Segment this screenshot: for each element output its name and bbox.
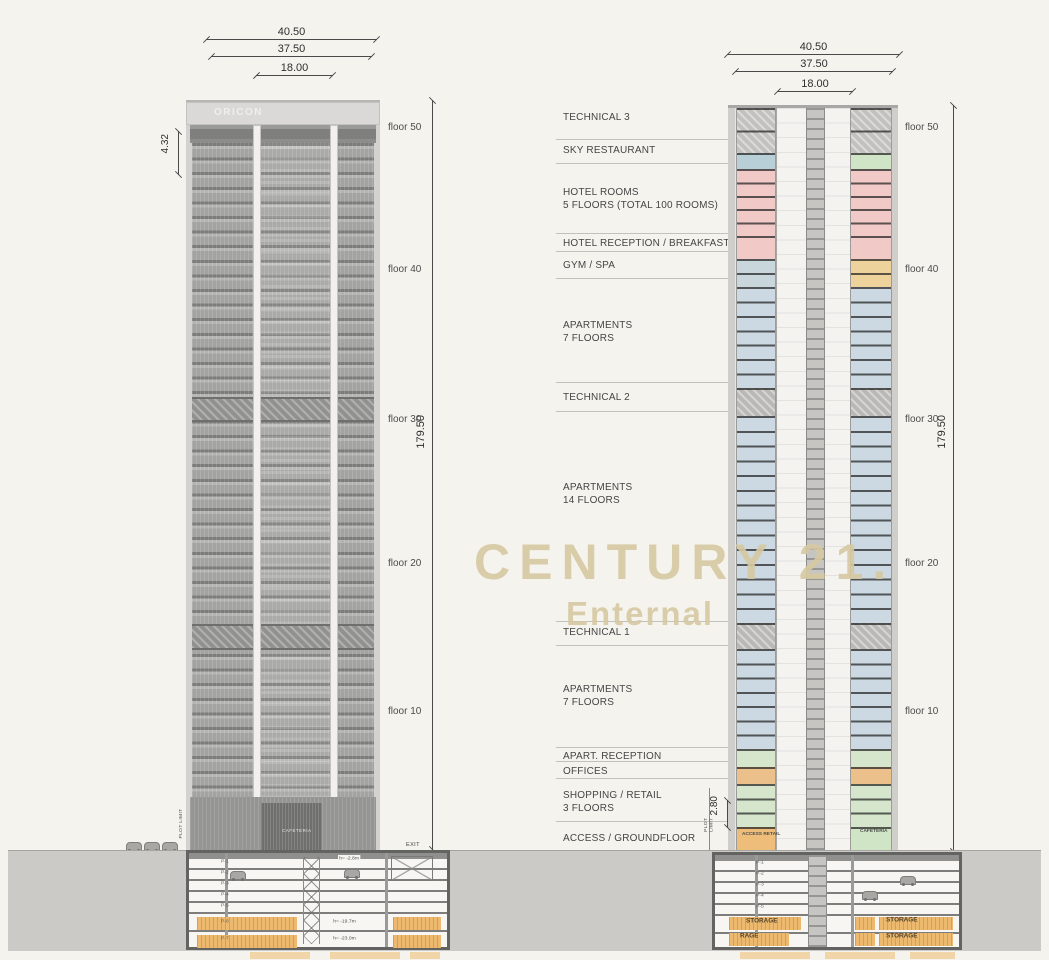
floor-label-20-right: floor 20	[905, 558, 938, 569]
watermark: CENTURY 21. Enternal	[474, 533, 895, 633]
zone-apartments-lower	[850, 649, 892, 749]
watermark-subbrand: Enternal	[566, 595, 895, 633]
basement-wall	[225, 853, 228, 947]
exit-label: EXIT	[406, 841, 420, 847]
dim-retail-height	[727, 800, 728, 828]
zone-apart-reception	[736, 749, 776, 767]
level-height-p6: h= -19.7m	[332, 918, 357, 924]
separator-line	[556, 233, 728, 234]
program-label-access-groundfloor: ACCESS / GROUNDFLOOR	[563, 832, 738, 845]
storage-block	[197, 917, 297, 930]
program-label-apartments-upper: APARTMENTS7 FLOORS	[563, 319, 738, 345]
dim-section-height	[953, 105, 954, 852]
elevator-shaft-basement	[808, 855, 827, 947]
storage-block	[910, 952, 955, 959]
parking-level-label: P-4	[756, 892, 764, 898]
floor-label-50-left: floor 50	[388, 122, 421, 133]
storage-block	[825, 952, 895, 959]
floor-label-40-right: floor 40	[905, 264, 938, 275]
facade-center-bay	[261, 143, 330, 797]
floor-label-30-right: floor 30	[905, 414, 938, 425]
zone-shopping-retail	[850, 784, 892, 827]
dim-elevation-40-50: 40.50	[206, 39, 377, 40]
parking-level-label: P-7	[221, 935, 229, 941]
separator-line	[556, 778, 728, 779]
car-icon	[344, 869, 360, 878]
zone-hotel-rooms	[850, 169, 892, 236]
zone-apartments-lower	[736, 649, 776, 749]
core-bracing	[303, 857, 320, 944]
zone-sky-restaurant	[736, 153, 776, 169]
storage-label: RAGE	[740, 932, 759, 939]
floor-label-10-right: floor 10	[905, 706, 938, 717]
dim-elevation-crown	[178, 131, 179, 175]
program-label-apartments-middle: APARTMENTS14 FLOORS	[563, 481, 738, 507]
dim-elevation-37-50: 37.50	[211, 56, 372, 57]
parking-level-label: P-5	[756, 903, 764, 909]
separator-line	[556, 251, 728, 252]
dim-elevation-18-00: 18.00	[256, 75, 333, 76]
separator-line	[556, 382, 728, 383]
program-label-hotel-rooms: HOTEL ROOMS5 FLOORS (TOTAL 100 ROOMS)	[563, 186, 738, 212]
car-icon	[230, 871, 246, 880]
storage-block	[330, 952, 400, 959]
dim-retail-height-label: 2.80	[709, 796, 720, 815]
basement-wall	[851, 855, 854, 947]
program-label-apartments-lower: APARTMENTS7 FLOORS	[563, 683, 738, 709]
zone-technical-3	[736, 108, 776, 153]
restaurant-band	[190, 125, 376, 143]
cafeteria-sign-elevation: CAFETERIA	[282, 828, 312, 833]
storage-label: STORAGE	[746, 917, 778, 924]
storage-block	[855, 933, 875, 946]
zone-technical-3	[850, 108, 892, 153]
parking-level-label: P-3	[221, 880, 229, 886]
parking-level-label: P-5	[221, 902, 229, 908]
floor-label-10-left: floor 10	[388, 706, 421, 717]
facade-pier-right	[330, 125, 338, 852]
car-icon	[900, 876, 916, 885]
storage-block	[197, 935, 297, 948]
floor-label-30-left: floor 30	[388, 414, 421, 425]
zone-sky-restaurant	[850, 153, 892, 169]
parking-level-label: P-6	[221, 918, 229, 924]
facade-edge-left	[186, 125, 192, 852]
storage-label: STORAGE	[886, 916, 918, 923]
section-wing-left	[736, 108, 776, 855]
separator-line	[556, 278, 728, 279]
separator-line	[556, 139, 728, 140]
dim-elevation-height	[432, 100, 433, 850]
cafeteria-label-section: CAFETERIA	[860, 828, 887, 833]
oricon-sign: ORICON	[214, 107, 263, 118]
program-label-offices: OFFICES	[563, 765, 738, 778]
zone-gym-spa	[850, 259, 892, 287]
level-height-p7: h= -23.0m	[332, 935, 357, 941]
dim-section-18-00: 18.00	[777, 91, 853, 92]
zone-technical-2	[850, 388, 892, 416]
program-label-sky-restaurant: SKY RESTAURANT	[563, 144, 738, 157]
zone-apart-reception	[850, 749, 892, 767]
level-height-p1: h= -2.8m	[338, 855, 360, 861]
parking-level-label: P-2	[221, 869, 229, 875]
watermark-brand: CENTURY 21.	[474, 533, 895, 591]
program-label-gym-spa: GYM / SPA	[563, 259, 738, 272]
program-label-technical-2: TECHNICAL 2	[563, 391, 738, 404]
section-wing-right	[850, 108, 892, 855]
tower-base	[190, 797, 376, 852]
parking-level-label: P-3	[756, 881, 764, 887]
separator-line	[556, 163, 728, 164]
storage-label: STORAGE	[886, 932, 918, 939]
section-wall-right	[892, 108, 898, 855]
storage-block	[729, 933, 789, 946]
building-sections-drawing: 40.50 37.50 18.00 4.32 179.50 floor 50 f…	[0, 0, 1049, 960]
separator-line	[556, 747, 728, 748]
exit-stair-box	[391, 856, 433, 881]
parking-level-label: P-2	[756, 870, 764, 876]
tower-section	[728, 105, 898, 855]
program-label-hotel-reception: HOTEL RECEPTION / BREAKFAST	[563, 237, 738, 250]
car-icon	[862, 891, 878, 900]
facade-edge-right	[374, 125, 380, 852]
zone-hotel-reception	[736, 236, 776, 259]
zone-offices	[736, 767, 776, 784]
floor-label-20-left: floor 20	[388, 558, 421, 569]
zone-technical-2	[736, 388, 776, 416]
program-label-technical-3: TECHNICAL 3	[563, 111, 738, 124]
zone-shopping-retail	[736, 784, 776, 827]
section-core	[776, 108, 852, 855]
storage-block	[393, 935, 441, 948]
section-wall-left	[728, 108, 735, 855]
technical-band-lower	[192, 624, 374, 650]
storage-block	[393, 917, 441, 930]
parking-level-label: P-1	[221, 858, 229, 864]
dim-elevation-crown-label: 4.32	[160, 134, 171, 153]
program-label-apart-reception: APART. RECEPTION	[563, 750, 738, 763]
separator-line	[556, 411, 728, 412]
storage-block	[250, 952, 310, 959]
parking-levels-upper	[715, 861, 959, 916]
crown-band: ORICON	[186, 102, 380, 125]
floor-label-40-left: floor 40	[388, 264, 421, 275]
zone-hotel-reception	[850, 236, 892, 259]
technical-band-floor-30	[192, 397, 374, 422]
zone-apartments-upper	[850, 287, 892, 388]
parking-level-label: P-1	[756, 859, 764, 865]
dim-section-40-50: 40.50	[727, 54, 900, 55]
facade-pier-left	[253, 125, 261, 852]
elevator-shaft	[806, 108, 825, 855]
zone-offices	[850, 767, 892, 784]
basement-wall	[385, 853, 388, 947]
zone-gym-spa	[736, 259, 776, 287]
floor-label-50-right: floor 50	[905, 122, 938, 133]
dim-section-37-50: 37.50	[735, 71, 893, 72]
separator-line	[556, 645, 728, 646]
storage-block	[740, 952, 810, 959]
storage-block	[410, 952, 440, 959]
plot-limit-left: PLOT LIMIT	[178, 808, 184, 839]
parking-level-label: P-4	[221, 891, 229, 897]
zone-apartments-upper	[736, 287, 776, 388]
access-retail-label: ACCESS RETAIL	[742, 831, 780, 836]
storage-block	[855, 917, 875, 930]
tower-elevation: ORICON CAFETERIA	[186, 100, 380, 852]
zone-hotel-rooms	[736, 169, 776, 236]
